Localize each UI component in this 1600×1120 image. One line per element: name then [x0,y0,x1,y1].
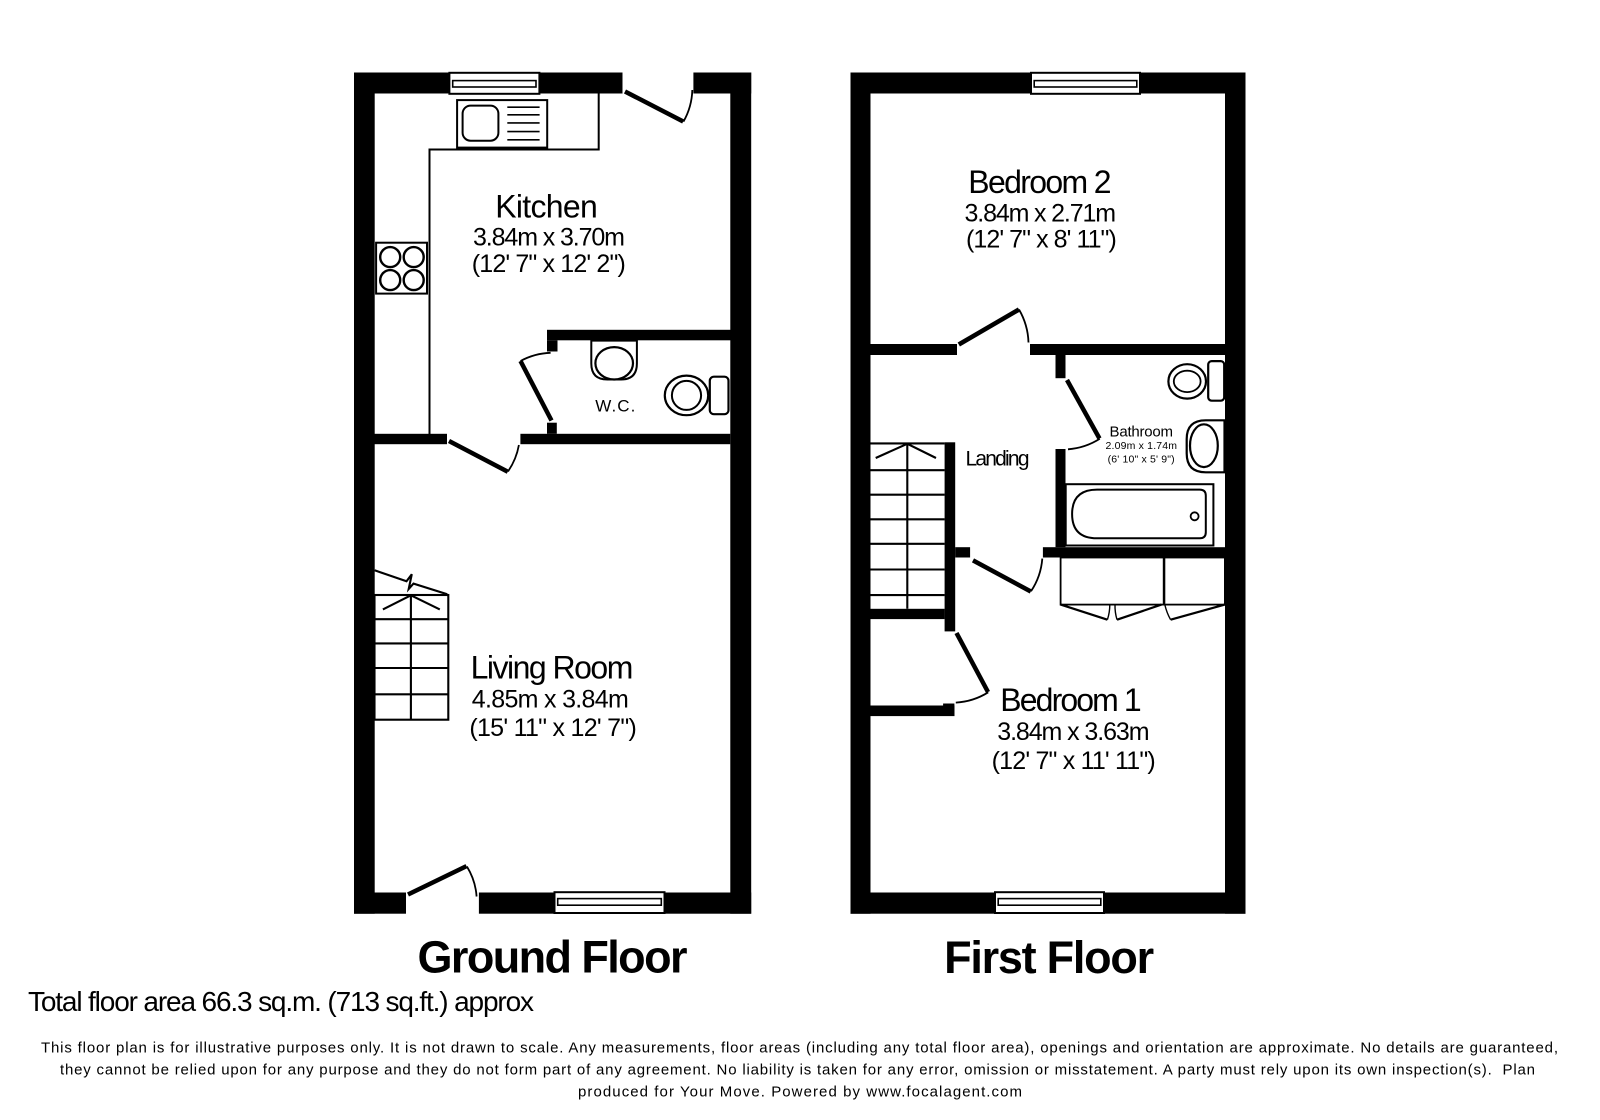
svg-text:3.84m x 3.63m: 3.84m x 3.63m [997,718,1149,746]
svg-text:Bedroom 1: Bedroom 1 [1000,682,1141,718]
svg-text:(12' 7" x 8' 11"): (12' 7" x 8' 11") [966,226,1117,254]
svg-text:First Floor: First Floor [944,932,1154,983]
svg-text:Kitchen: Kitchen [495,188,598,224]
svg-text:(15' 11" x 12' 7"): (15' 11" x 12' 7") [469,714,637,742]
svg-text:Living Room: Living Room [471,650,634,686]
svg-text:3.84m x 3.70m: 3.84m x 3.70m [473,224,625,252]
svg-text:3.84m x 2.71m: 3.84m x 2.71m [965,199,1117,227]
svg-text:Total floor area 66.3 sq.m. (7: Total floor area 66.3 sq.m. (713 sq.ft.)… [28,986,534,1017]
svg-text:2.09m x 1.74m: 2.09m x 1.74m [1106,440,1178,452]
svg-text:W.C.: W.C. [595,397,635,416]
svg-text:(12' 7" x 11' 11"): (12' 7" x 11' 11") [992,747,1156,775]
svg-text:Landing: Landing [966,448,1030,471]
svg-text:Bedroom 2: Bedroom 2 [968,164,1111,200]
svg-text:(6' 10" x 5' 9"): (6' 10" x 5' 9") [1108,454,1175,466]
svg-text:This floor plan is for illustr: This floor plan is for illustrative purp… [41,1040,1558,1057]
svg-text:(12' 7" x 12' 2"): (12' 7" x 12' 2") [472,250,626,278]
svg-text:Ground Floor: Ground Floor [418,932,688,983]
svg-text:4.85m x 3.84m: 4.85m x 3.84m [472,686,629,714]
svg-text:they cannot be relied upon for: they cannot be relied upon for any purpo… [60,1062,1535,1079]
svg-text:Bathroom: Bathroom [1110,424,1174,441]
svg-text:produced for Your Move. Powere: produced for Your Move. Powered by www.f… [578,1084,1022,1101]
